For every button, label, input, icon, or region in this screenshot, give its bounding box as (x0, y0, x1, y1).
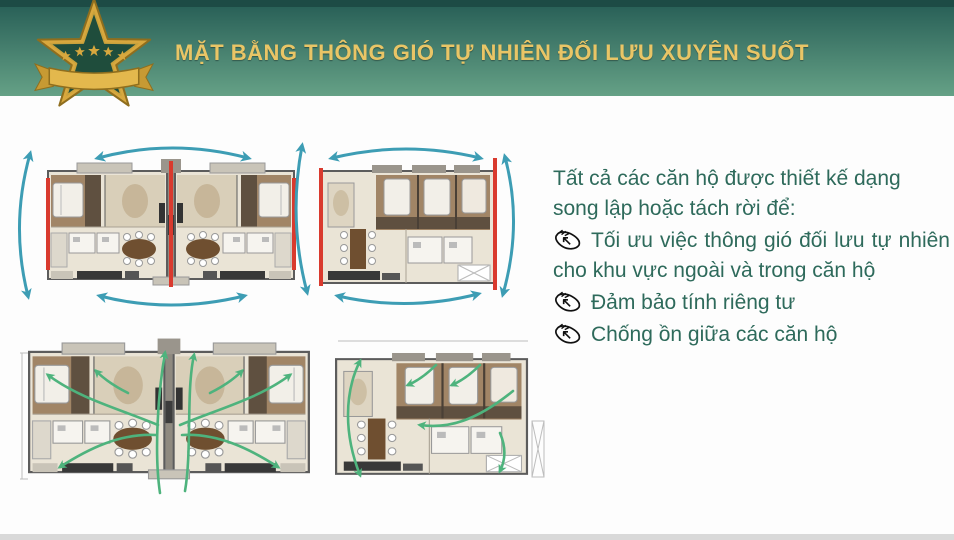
bottom-edge-strip (0, 534, 954, 540)
benefit-text: Tối ưu việc thông gió đối lưu tự nhiên c… (553, 229, 950, 282)
intro-text: Tất cả các căn hộ được thiết kế dạng son… (553, 164, 950, 224)
pointing-hand-icon (553, 289, 583, 315)
page-title: MẶT BẰNG THÔNG GIÓ TỰ NHIÊN ĐỐI LƯU XUYÊ… (175, 40, 809, 66)
benefit-item: Tối ưu việc thông gió đối lưu tự nhiên c… (553, 226, 950, 286)
floor-plan-top-twin (46, 159, 296, 287)
top-floor-plans (8, 132, 548, 320)
benefit-text: Chống ồn giữa các căn hộ (591, 323, 837, 346)
intro-line-1: Tất cả các căn hộ được thiết kế dạng (553, 164, 950, 194)
benefit-item: Đảm bảo tính riêng tư (553, 288, 950, 318)
five-star-badge-icon (33, 0, 155, 134)
benefits-text-block: Tất cả các căn hộ được thiết kế dạng son… (553, 164, 950, 352)
floor-plan-bottom-single (336, 353, 527, 474)
benefit-item: Chống ồn giữa các căn hộ (553, 320, 950, 350)
benefit-text: Đảm bảo tính riêng tư (591, 291, 795, 314)
intro-line-2: song lập hoặc tách rời để: (553, 194, 950, 224)
floor-plan-bottom-twin (29, 339, 309, 479)
slide: MẶT BẰNG THÔNG GIÓ TỰ NHIÊN ĐỐI LƯU XUYÊ… (0, 0, 954, 540)
pointing-hand-icon (553, 227, 583, 253)
floor-plan-top-single (319, 158, 497, 290)
bottom-floor-plans (8, 333, 548, 515)
pointing-hand-icon (553, 321, 583, 347)
